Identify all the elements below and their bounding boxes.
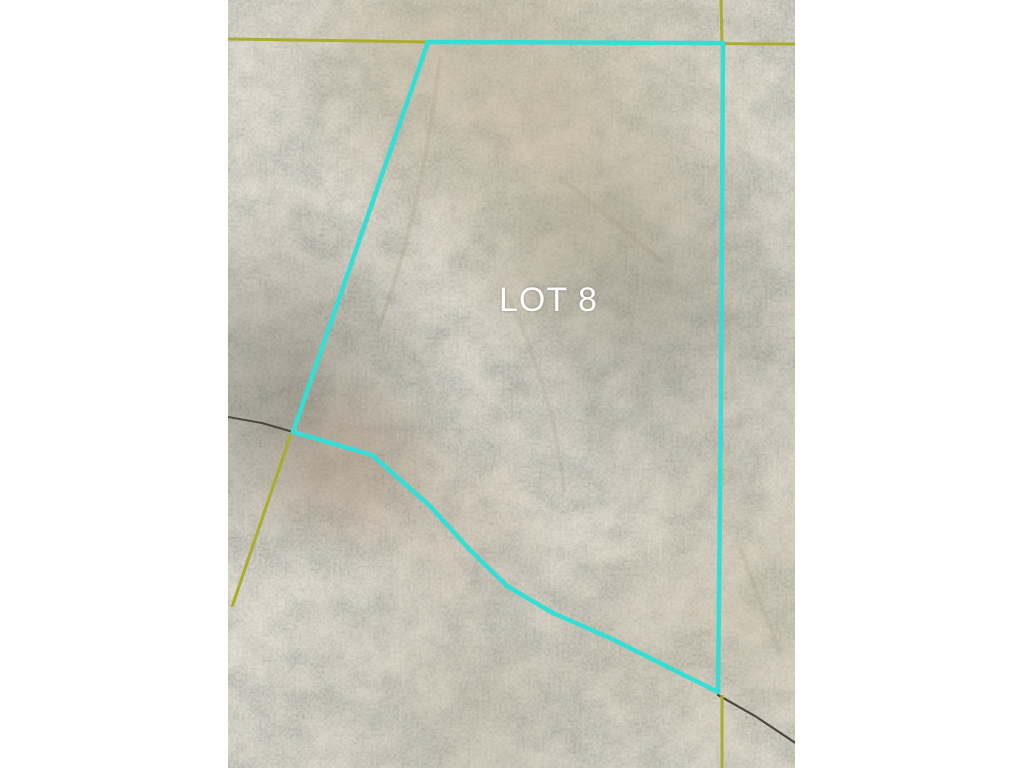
trail-line-southeast [718,695,797,744]
trail-line-west [228,417,293,432]
parcel-line-north-vertical [721,0,722,43]
survey-overlay [0,0,1024,768]
lot-label: LOT 8 [499,282,598,319]
map-canvas: LOT 8 [0,0,1024,768]
lot-boundary [293,42,723,692]
parcel-line-southwest-diagonal [232,434,291,607]
parcel-line-top-west [228,39,428,42]
